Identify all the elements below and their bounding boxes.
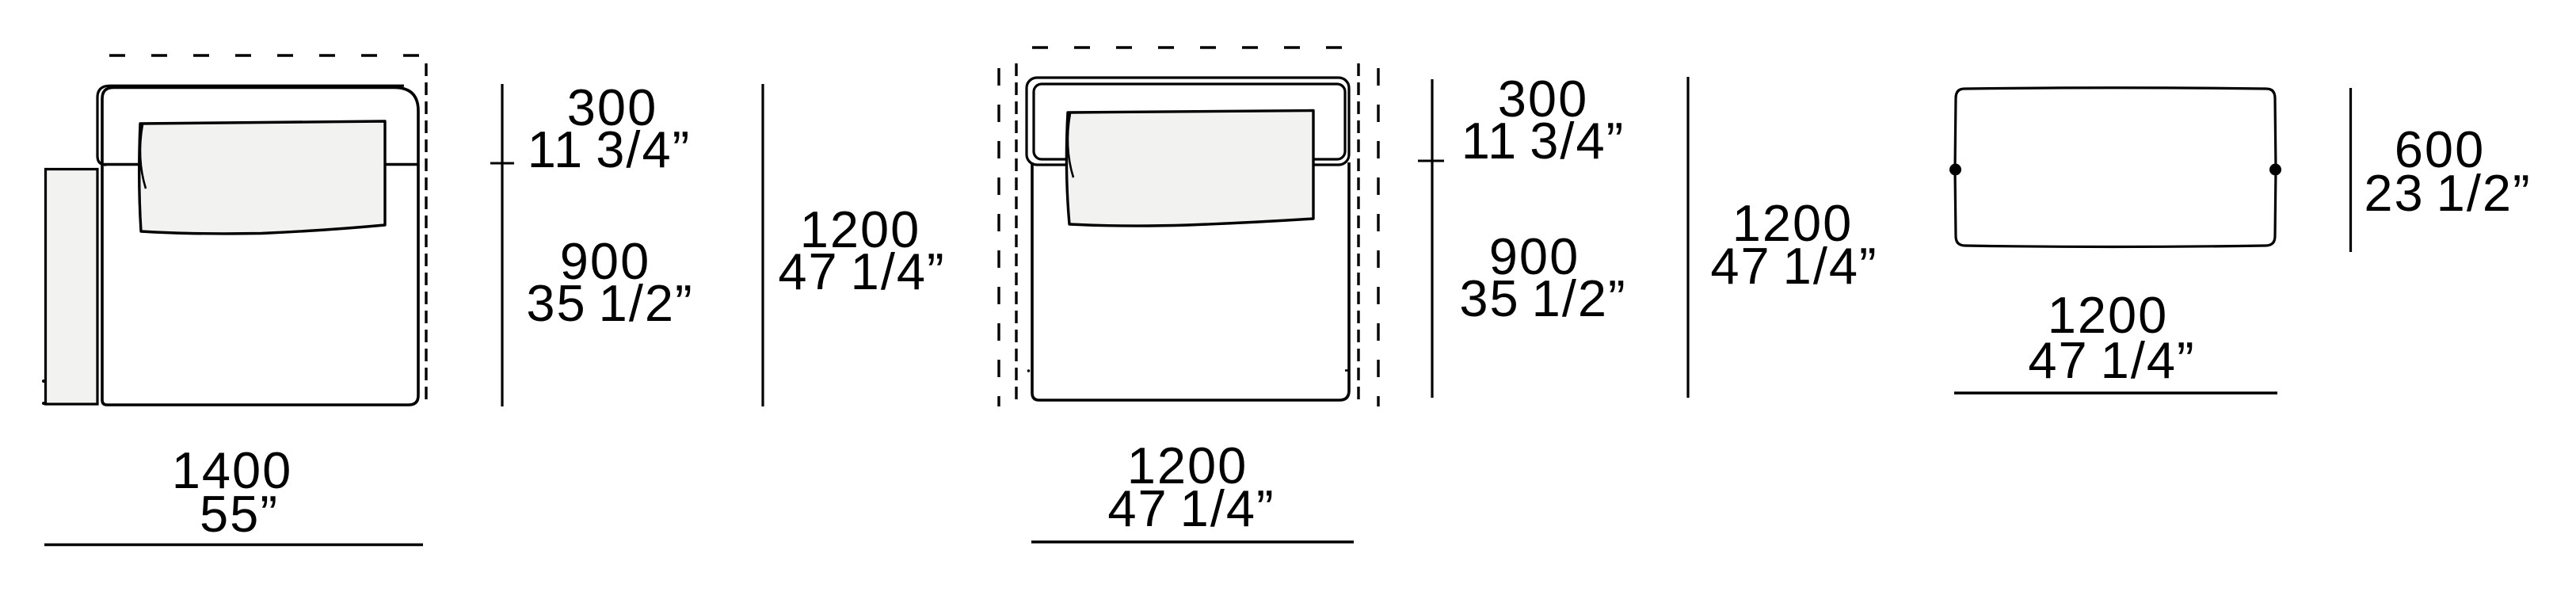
svg-text:47 1/4”: 47 1/4” [2028, 331, 2195, 389]
svg-text:35 1/2”: 35 1/2” [526, 274, 693, 332]
svg-text:23 1/2”: 23 1/2” [2364, 164, 2531, 222]
svg-text:47 1/4”: 47 1/4” [778, 242, 945, 300]
svg-text:35 1/2”: 35 1/2” [1459, 269, 1626, 327]
svg-text:11 3/4”: 11 3/4” [1461, 112, 1625, 170]
svg-text:11 3/4”: 11 3/4” [528, 120, 692, 178]
svg-text:47 1/4”: 47 1/4” [1107, 479, 1275, 537]
svg-text:55”: 55” [200, 485, 279, 543]
svg-text:47 1/4”: 47 1/4” [1710, 237, 1877, 295]
